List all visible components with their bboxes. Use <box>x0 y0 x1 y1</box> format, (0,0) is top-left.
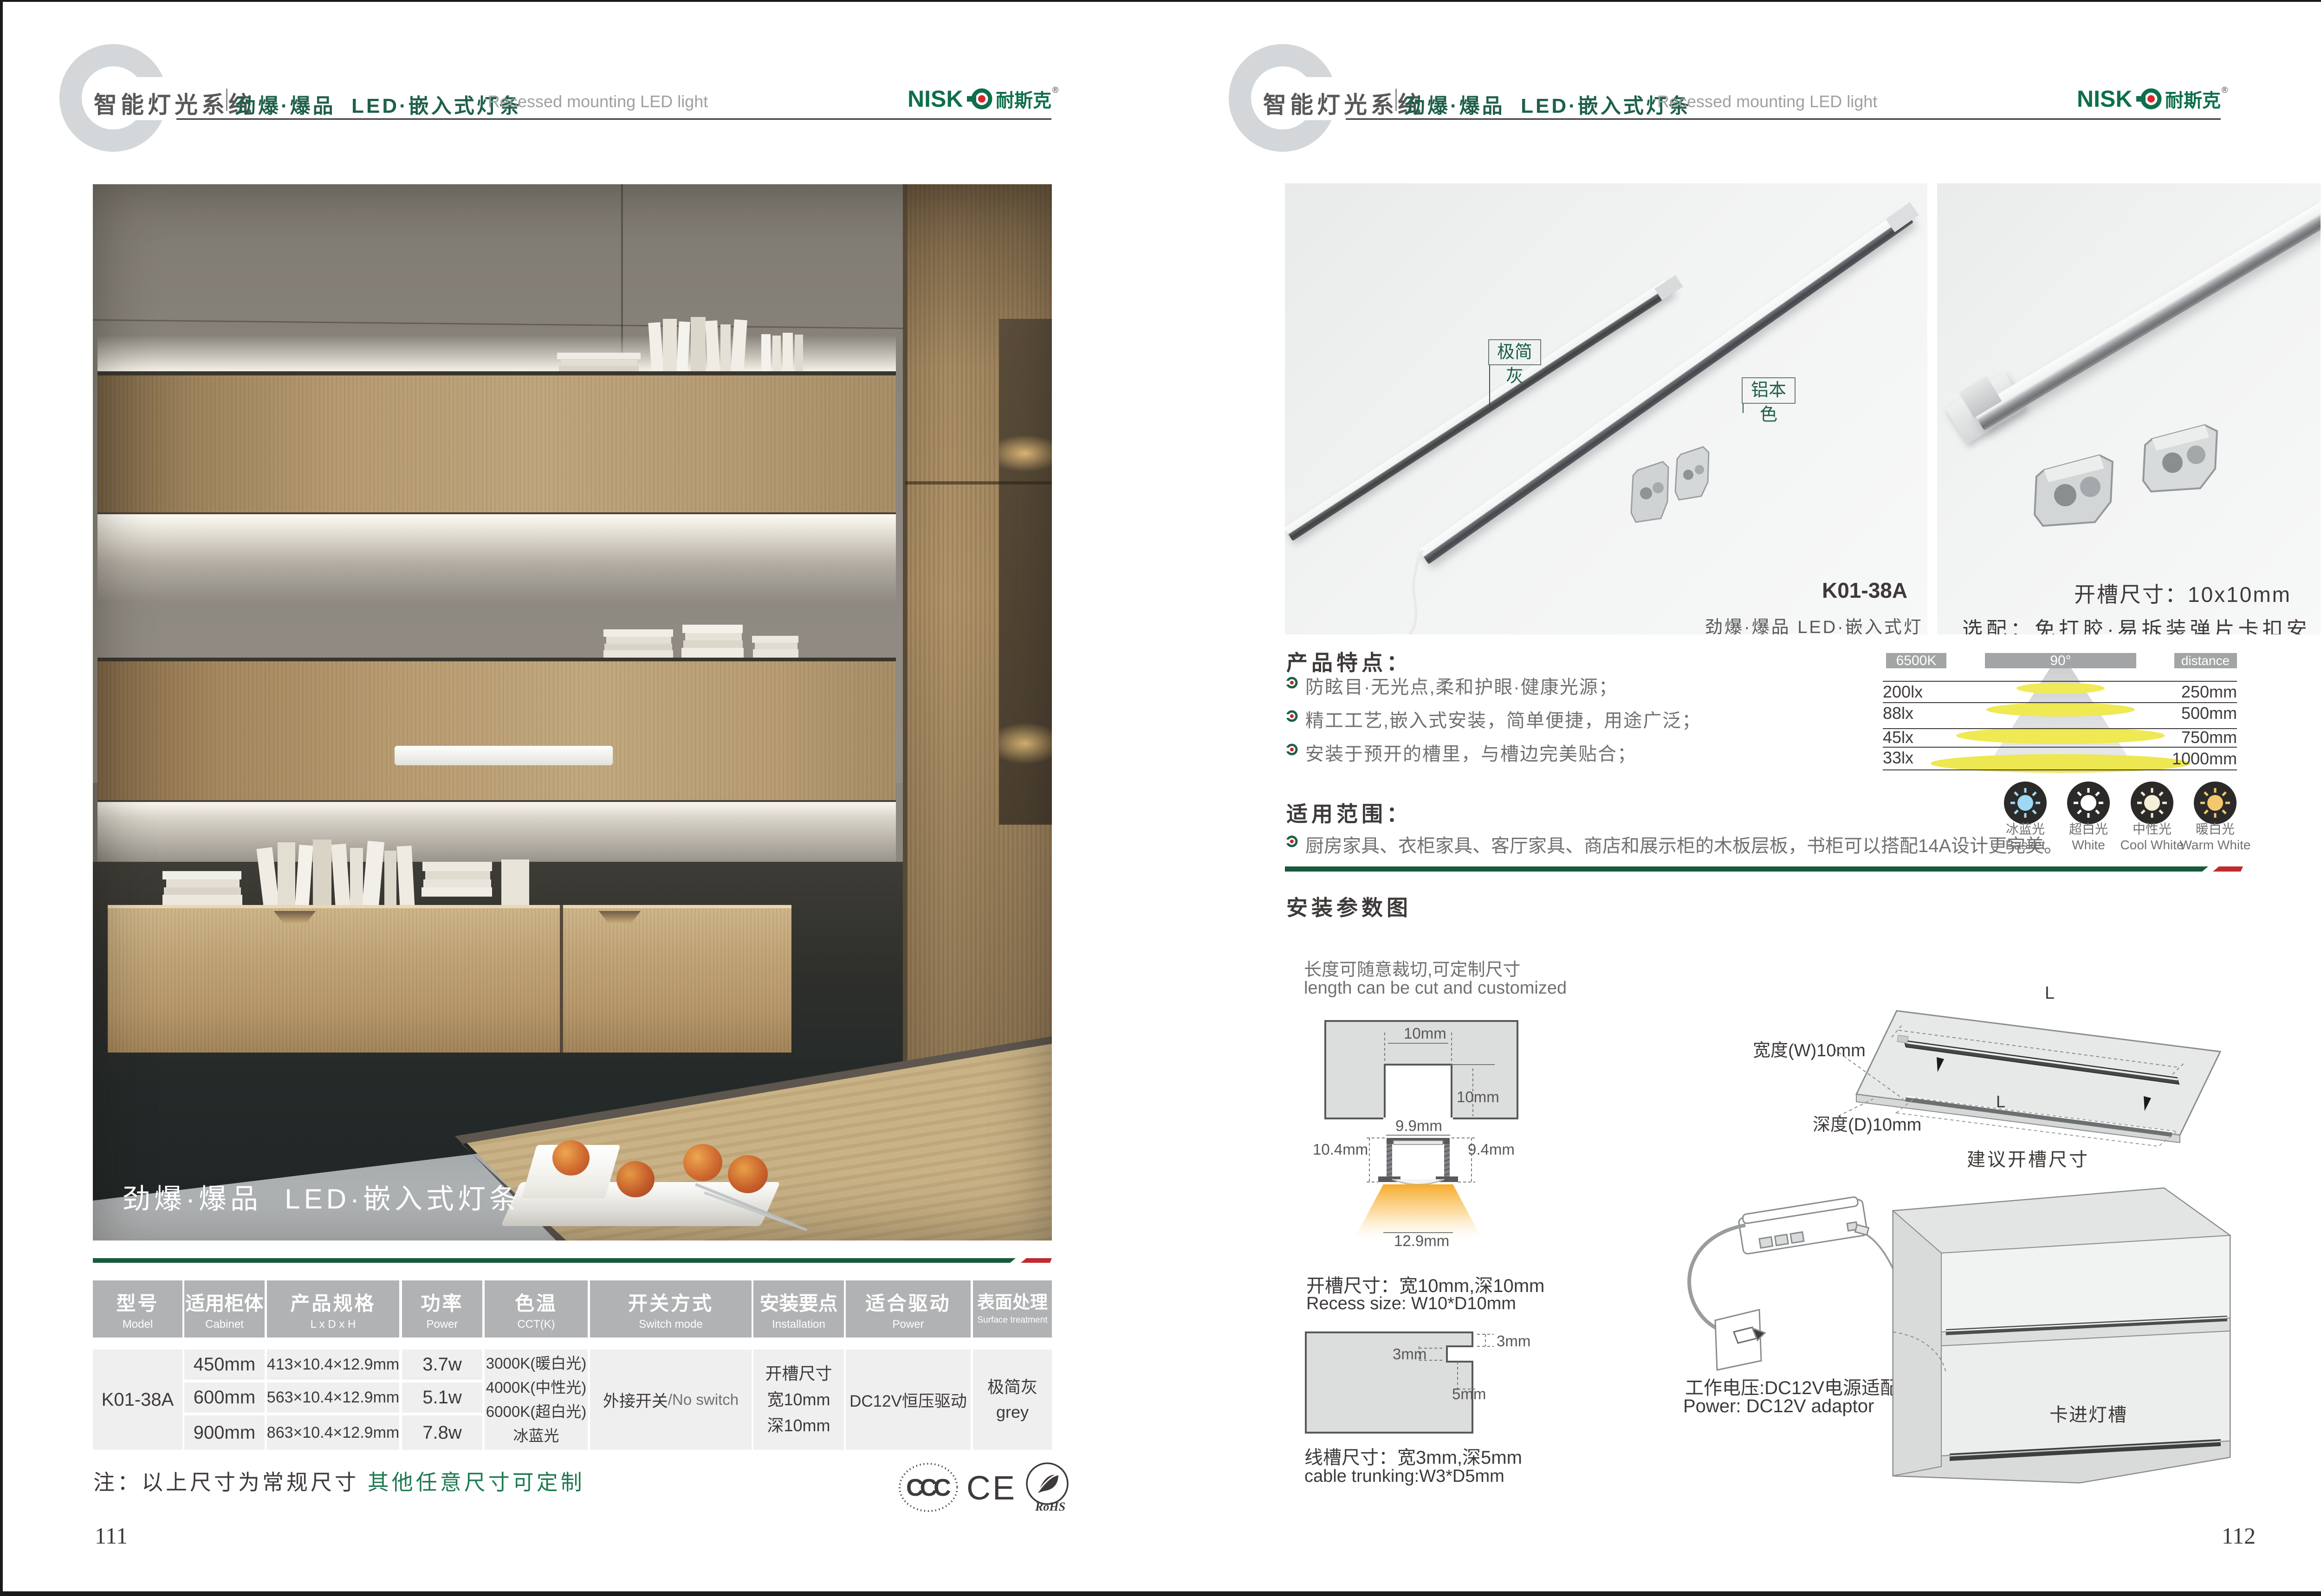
svg-text:9.9mm: 9.9mm <box>1395 1117 1442 1134</box>
svg-text:1000mm: 1000mm <box>2172 749 2237 768</box>
svg-text:3mm: 3mm <box>1497 1332 1530 1350</box>
svg-text:200lx: 200lx <box>1883 682 1923 701</box>
svg-text:5mm: 5mm <box>1452 1385 1486 1402</box>
svg-text:9.4mm: 9.4mm <box>1468 1141 1515 1158</box>
svg-text:L: L <box>2045 983 2055 1003</box>
svg-text:6500K: 6500K <box>1896 653 1937 668</box>
svg-text:45lx: 45lx <box>1883 728 1913 747</box>
svg-text:CE: CE <box>966 1470 1017 1507</box>
svg-text:3mm: 3mm <box>1393 1345 1426 1363</box>
svg-text:NISK: NISK <box>908 86 963 112</box>
svg-text:88lx: 88lx <box>1883 704 1913 723</box>
svg-text:distance: distance <box>2181 653 2230 668</box>
svg-text:®: ® <box>2222 86 2228 95</box>
svg-text:耐斯克: 耐斯克 <box>996 90 1051 111</box>
svg-text:耐斯克: 耐斯克 <box>2165 90 2221 111</box>
svg-text:®: ® <box>1052 86 1058 95</box>
svg-text:33lx: 33lx <box>1883 748 1913 767</box>
svg-text:12.9mm: 12.9mm <box>1394 1232 1449 1248</box>
svg-text:750mm: 750mm <box>2181 728 2237 747</box>
svg-text:500mm: 500mm <box>2181 704 2237 723</box>
svg-text:RoHS: RoHS <box>1035 1500 1065 1513</box>
svg-text:L: L <box>1996 1092 2005 1111</box>
svg-text:10.4mm: 10.4mm <box>1313 1141 1368 1158</box>
svg-text:250mm: 250mm <box>2181 682 2237 701</box>
svg-text:90°: 90° <box>2050 653 2071 668</box>
svg-text:10mm: 10mm <box>1404 1025 1446 1042</box>
svg-text:10mm: 10mm <box>1457 1088 1499 1105</box>
svg-text:NISK: NISK <box>2077 86 2132 112</box>
svg-text:CCC: CCC <box>906 1474 951 1501</box>
